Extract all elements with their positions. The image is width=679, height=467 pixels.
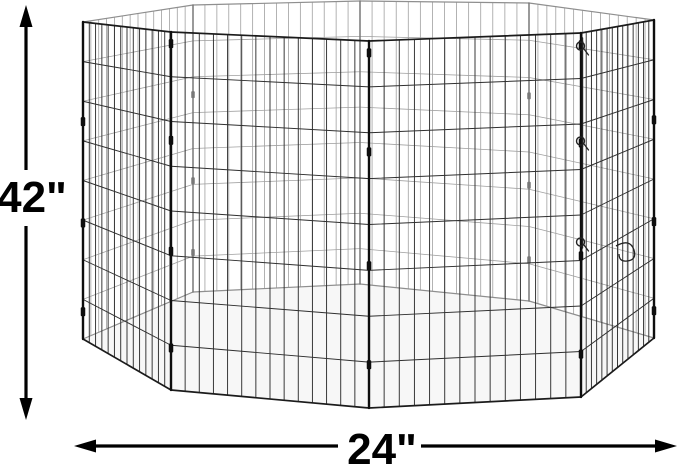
left-arrowhead-icon — [74, 440, 96, 453]
width-dimension-arrow: 24" — [74, 425, 677, 467]
door-latch — [577, 38, 635, 261]
height-dimension-arrow: 42" — [0, 5, 67, 420]
product-dimension-diagram: 42" 24" — [0, 0, 679, 467]
width-dimension-label: 24" — [347, 425, 417, 467]
pen-illustration: 42" 24" — [0, 0, 679, 467]
down-arrowhead-icon — [20, 398, 33, 420]
up-arrowhead-icon — [20, 5, 33, 27]
right-arrowhead-icon — [655, 440, 677, 453]
height-dimension-label: 42" — [0, 173, 67, 222]
